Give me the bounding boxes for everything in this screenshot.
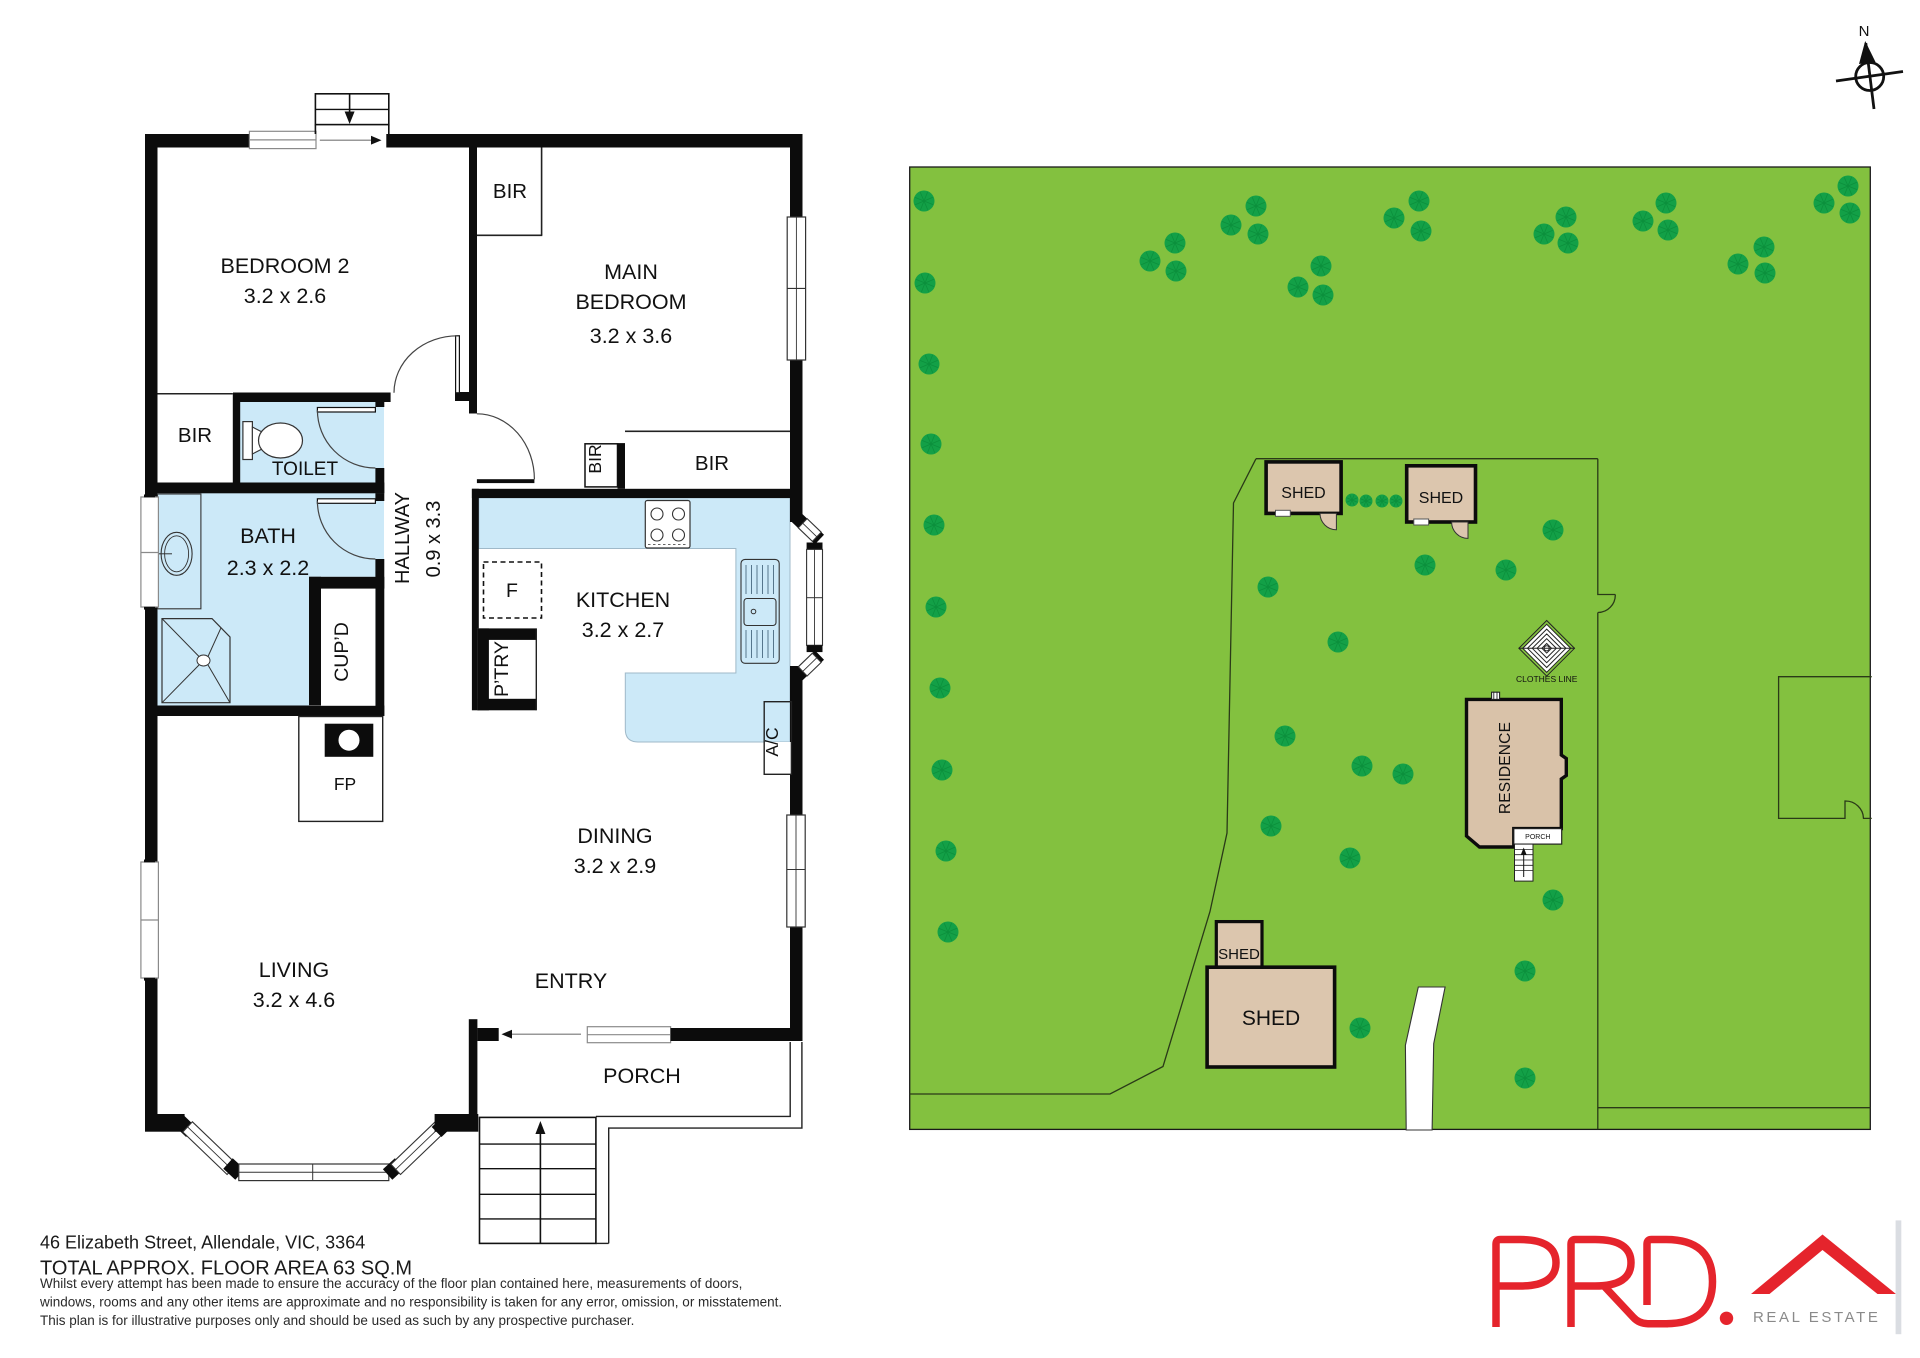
svg-text:N: N bbox=[1859, 23, 1870, 40]
svg-text:3.2 x 4.6: 3.2 x 4.6 bbox=[253, 988, 336, 1012]
svg-text:46 Elizabeth Street, Allendale: 46 Elizabeth Street, Allendale, VIC, 336… bbox=[40, 1233, 365, 1253]
svg-text:RESIDENCE: RESIDENCE bbox=[1497, 722, 1514, 814]
svg-text:BEDROOM: BEDROOM bbox=[575, 290, 686, 314]
svg-text:3.2 x 3.6: 3.2 x 3.6 bbox=[590, 324, 673, 348]
svg-text:0.9 x 3.3: 0.9 x 3.3 bbox=[423, 501, 445, 578]
svg-text:LIVING: LIVING bbox=[259, 958, 330, 982]
svg-text:Whilst every attempt has been: Whilst every attempt has been made to en… bbox=[40, 1276, 742, 1291]
svg-text:2.3 x 2.2: 2.3 x 2.2 bbox=[227, 556, 309, 580]
svg-text:PORCH: PORCH bbox=[603, 1064, 681, 1088]
svg-text:PORCH: PORCH bbox=[1525, 834, 1550, 841]
svg-text:P’TRY: P’TRY bbox=[491, 641, 513, 697]
svg-text:SHED: SHED bbox=[1281, 485, 1325, 502]
svg-text:ENTRY: ENTRY bbox=[535, 969, 607, 993]
svg-text:SHED: SHED bbox=[1218, 946, 1260, 963]
svg-text:BIR: BIR bbox=[695, 452, 729, 475]
svg-text:TOILET: TOILET bbox=[272, 459, 339, 480]
svg-text:CUP’D: CUP’D bbox=[331, 622, 353, 682]
svg-text:SHED: SHED bbox=[1419, 490, 1463, 507]
svg-text:3.2 x 2.9: 3.2 x 2.9 bbox=[574, 854, 656, 878]
svg-text:REAL ESTATE: REAL ESTATE bbox=[1753, 1309, 1881, 1326]
svg-text:3.2 x 2.7: 3.2 x 2.7 bbox=[582, 618, 664, 642]
svg-text:KITCHEN: KITCHEN bbox=[576, 588, 670, 612]
svg-text:BEDROOM 2: BEDROOM 2 bbox=[220, 254, 349, 278]
svg-text:BIR: BIR bbox=[585, 444, 605, 473]
svg-text:MAIN: MAIN bbox=[604, 260, 658, 284]
svg-text:windows, rooms and any other i: windows, rooms and any other items are a… bbox=[39, 1295, 782, 1310]
svg-text:BIR: BIR bbox=[178, 424, 212, 447]
svg-text:HALLWAY: HALLWAY bbox=[392, 492, 414, 584]
svg-text:CLOTHES LINE: CLOTHES LINE bbox=[1516, 674, 1578, 684]
svg-text:This plan is for illustrative: This plan is for illustrative purposes o… bbox=[40, 1313, 634, 1328]
svg-text:A/C: A/C bbox=[762, 727, 782, 756]
svg-text:SHED: SHED bbox=[1242, 1007, 1300, 1030]
svg-text:FP: FP bbox=[334, 774, 356, 794]
svg-text:BIR: BIR bbox=[493, 180, 527, 203]
svg-text:DINING: DINING bbox=[577, 824, 652, 848]
svg-text:BATH: BATH bbox=[240, 524, 296, 548]
svg-text:3.2 x 2.6: 3.2 x 2.6 bbox=[244, 284, 327, 308]
svg-text:F: F bbox=[506, 580, 518, 602]
